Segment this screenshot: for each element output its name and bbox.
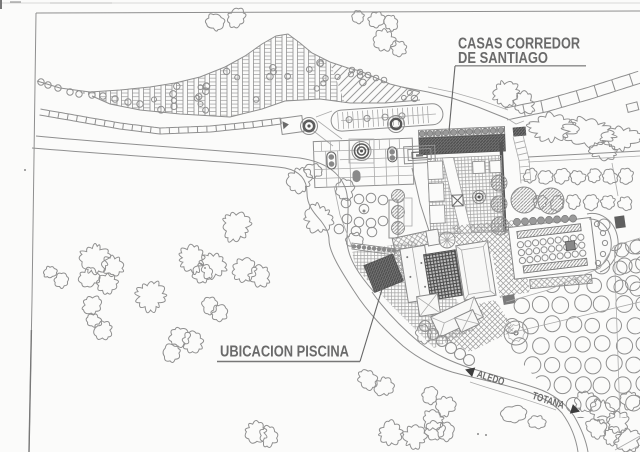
svg-text:DE SANTIAGO: DE SANTIAGO (458, 50, 548, 67)
svg-text:UBICACION PISCINA: UBICACION PISCINA (220, 344, 349, 361)
